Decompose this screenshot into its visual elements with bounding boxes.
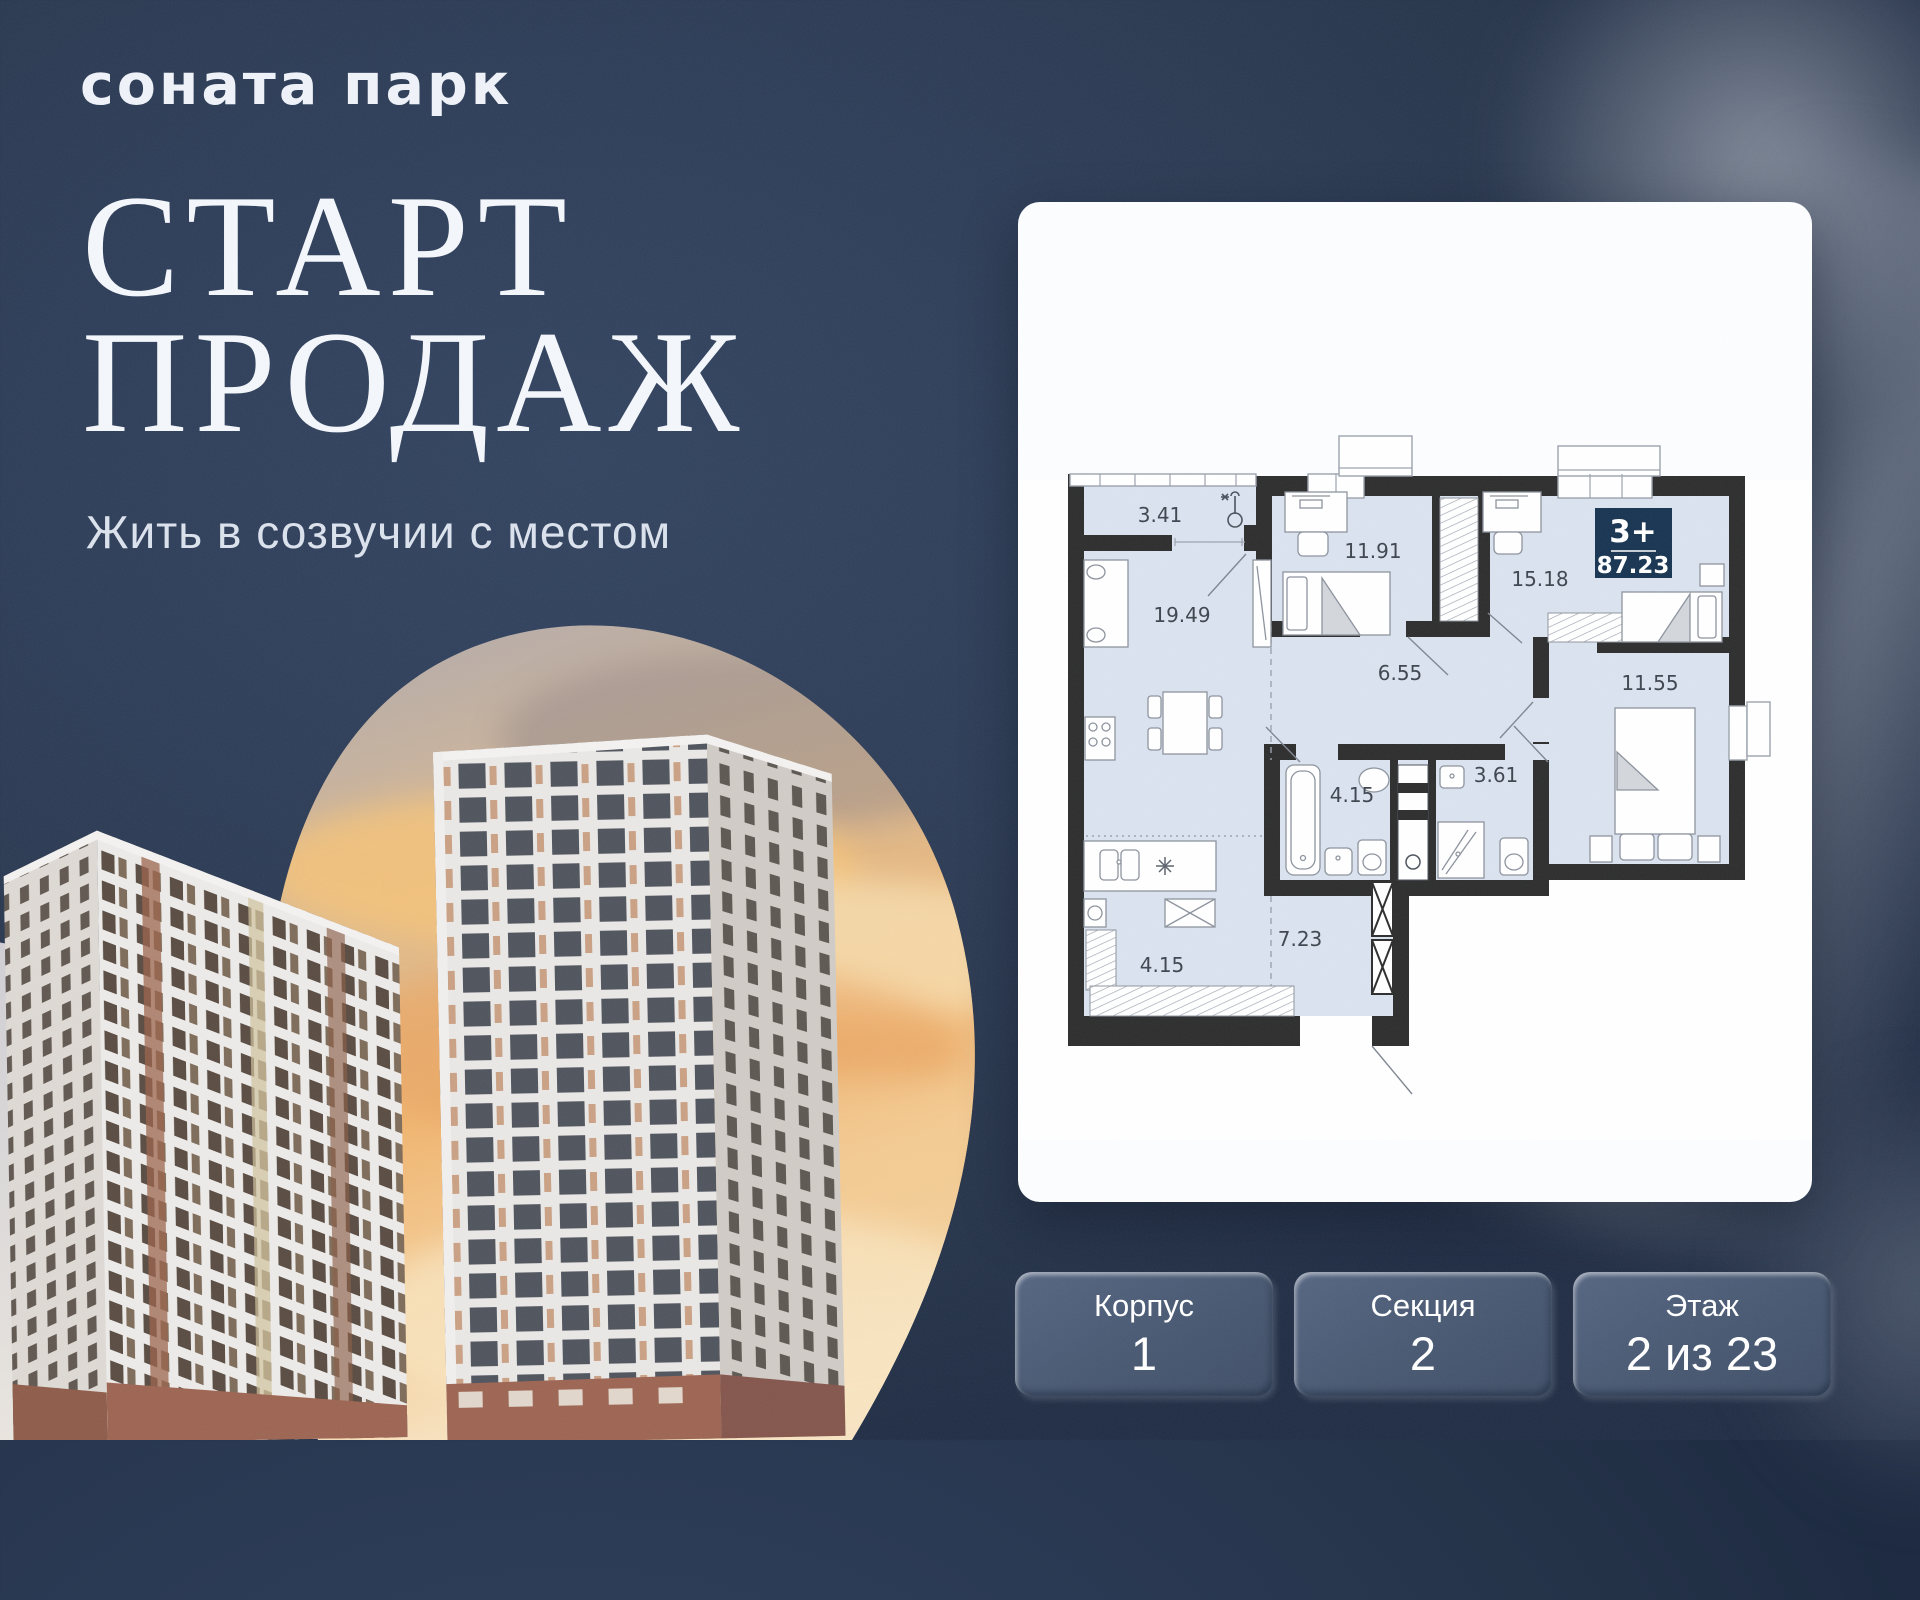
room-area-hall: 6.55 (1378, 661, 1423, 685)
building-selector[interactable]: Корпус 1 (1015, 1272, 1273, 1396)
floor-label: Этаж (1665, 1287, 1739, 1325)
buildings-photo (0, 620, 990, 1440)
apartment-badge: 3+ 87.23 (1595, 508, 1672, 579)
shower (1438, 822, 1484, 878)
room-area-balcony: 3.41 (1138, 503, 1183, 527)
brand-logo: соната парк (80, 52, 512, 118)
dining-table (1163, 692, 1207, 754)
building-value: 1 (1131, 1327, 1157, 1381)
nightstand (1698, 836, 1720, 862)
room-area-wardrobe: 4.15 (1140, 953, 1185, 977)
room-area-corridor: 7.23 (1278, 927, 1323, 951)
room-area-bedroom2: 15.18 (1511, 567, 1568, 591)
room-area-wc: 3.61 (1474, 763, 1519, 787)
badge-area: 87.23 (1597, 553, 1670, 579)
hero-title-line2: ПРОДАЖ (82, 314, 982, 450)
apartment-card[interactable]: 3.41 11.91 15.18 19.49 6.55 11.55 4.15 3… (1018, 202, 1812, 1202)
desk (1285, 492, 1347, 532)
room-area-living: 19.49 (1153, 603, 1210, 627)
sink (1325, 848, 1352, 875)
floor-plan: 3.41 11.91 15.18 19.49 6.55 11.55 4.15 3… (1060, 430, 1780, 1110)
floor-selector[interactable]: Этаж 2 из 23 (1573, 1272, 1831, 1396)
selector-buttons: Корпус 1 Секция 2 Этаж 2 из 23 (1015, 1272, 1840, 1396)
badge-rooms: 3+ (1609, 514, 1657, 550)
sink (1100, 850, 1118, 880)
room-area-bathroom: 4.15 (1330, 783, 1375, 807)
room-area-bedroom1: 11.91 (1344, 539, 1401, 563)
chair (1494, 532, 1522, 554)
stove (1085, 717, 1115, 760)
room-area-bedroom3: 11.55 (1621, 671, 1678, 695)
chair (1298, 532, 1328, 556)
hero-title-line1: СТАРТ (82, 178, 982, 314)
desk (1483, 492, 1541, 532)
section-value: 2 (1410, 1327, 1436, 1381)
building-label: Корпус (1094, 1287, 1194, 1325)
section-label: Секция (1370, 1287, 1475, 1325)
hero-title: СТАРТ ПРОДАЖ (82, 178, 982, 450)
section-selector[interactable]: Секция 2 (1294, 1272, 1552, 1396)
right-tower (433, 732, 846, 1440)
nightstand (1590, 836, 1612, 862)
hero-tagline: Жить в созвучии с местом (86, 505, 671, 559)
floor-value: 2 из 23 (1626, 1327, 1778, 1381)
nightstand (1700, 564, 1724, 586)
